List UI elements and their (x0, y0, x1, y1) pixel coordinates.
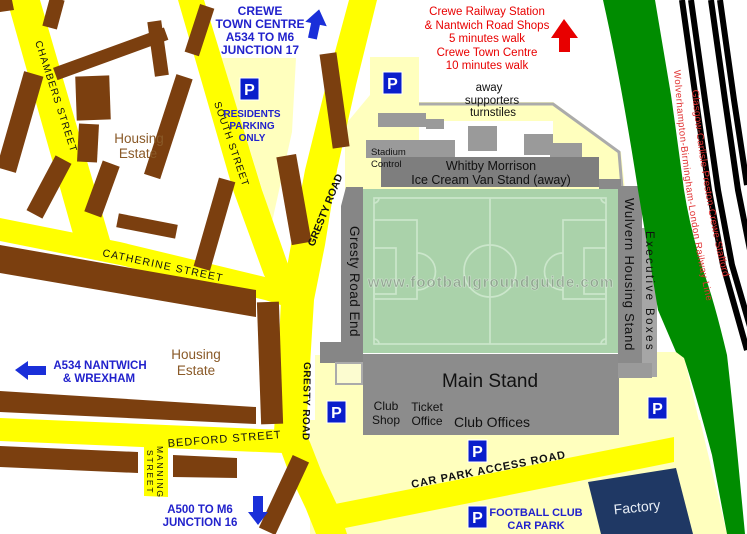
svg-text:Ticket: Ticket (411, 400, 443, 414)
svg-text:P: P (472, 510, 483, 527)
svg-text:Crewe Railway Station: Crewe Railway Station (429, 6, 545, 18)
svg-text:MANNING: MANNING (155, 446, 165, 499)
svg-text:Club: Club (374, 399, 399, 413)
svg-text:Crewe Town Centre: Crewe Town Centre (437, 47, 538, 59)
svg-text:RESIDENTS: RESIDENTS (223, 109, 281, 120)
svg-text:PARKING: PARKING (229, 121, 275, 132)
svg-text:Ice Cream Van Stand (away): Ice Cream Van Stand (away) (411, 173, 571, 187)
svg-text:Whitby Morrison: Whitby Morrison (446, 159, 536, 173)
svg-text:Stadium: Stadium (371, 147, 406, 158)
svg-text:P: P (472, 444, 483, 461)
svg-text:Wulvern Housing Stand: Wulvern Housing Stand (622, 198, 637, 351)
svg-text:GRESTY ROAD: GRESTY ROAD (300, 362, 312, 441)
svg-text:supporters: supporters (465, 95, 520, 107)
svg-text:turnstiles: turnstiles (470, 107, 516, 119)
svg-text:JUNCTION 16: JUNCTION 16 (163, 517, 238, 529)
svg-text:JUNCTION 17: JUNCTION 17 (221, 43, 299, 57)
svg-text:Executive Boxes: Executive Boxes (643, 231, 655, 352)
svg-text:P: P (331, 405, 342, 422)
svg-text:Estate: Estate (119, 146, 157, 161)
svg-text:CAR PARK: CAR PARK (507, 520, 564, 532)
svg-text:TOWN CENTRE: TOWN CENTRE (215, 17, 304, 31)
svg-text:Club Offices: Club Offices (454, 414, 530, 430)
svg-text:CREWE: CREWE (238, 4, 283, 18)
svg-text:www.footballgroundguide.com: www.footballgroundguide.com (367, 274, 614, 291)
svg-text:& WREXHAM: & WREXHAM (63, 373, 135, 385)
svg-text:Shop: Shop (372, 413, 400, 427)
svg-text:& Nantwich Road Shops: & Nantwich Road Shops (425, 20, 550, 32)
svg-text:P: P (387, 76, 398, 93)
svg-text:A534 TO M6: A534 TO M6 (226, 30, 295, 44)
svg-text:ONLY: ONLY (239, 133, 266, 144)
svg-text:Control: Control (371, 159, 402, 170)
svg-text:Main Stand: Main Stand (442, 371, 538, 392)
svg-text:STREET: STREET (145, 450, 155, 494)
svg-text:Office: Office (411, 414, 442, 428)
svg-text:P: P (244, 82, 255, 99)
svg-text:Housing: Housing (114, 131, 164, 146)
svg-text:Gresty Road End: Gresty Road End (347, 226, 362, 337)
svg-text:Estate: Estate (177, 363, 215, 378)
svg-text:away: away (476, 82, 503, 94)
svg-text:10 minutes walk: 10 minutes walk (446, 60, 529, 72)
svg-text:5 minutes walk: 5 minutes walk (449, 33, 525, 45)
svg-text:Housing: Housing (171, 347, 221, 362)
svg-text:A534 NANTWICH: A534 NANTWICH (53, 360, 146, 372)
svg-text:A500 TO M6: A500 TO M6 (167, 504, 233, 516)
svg-text:FOOTBALL CLUB: FOOTBALL CLUB (489, 507, 582, 519)
svg-text:P: P (652, 401, 663, 418)
